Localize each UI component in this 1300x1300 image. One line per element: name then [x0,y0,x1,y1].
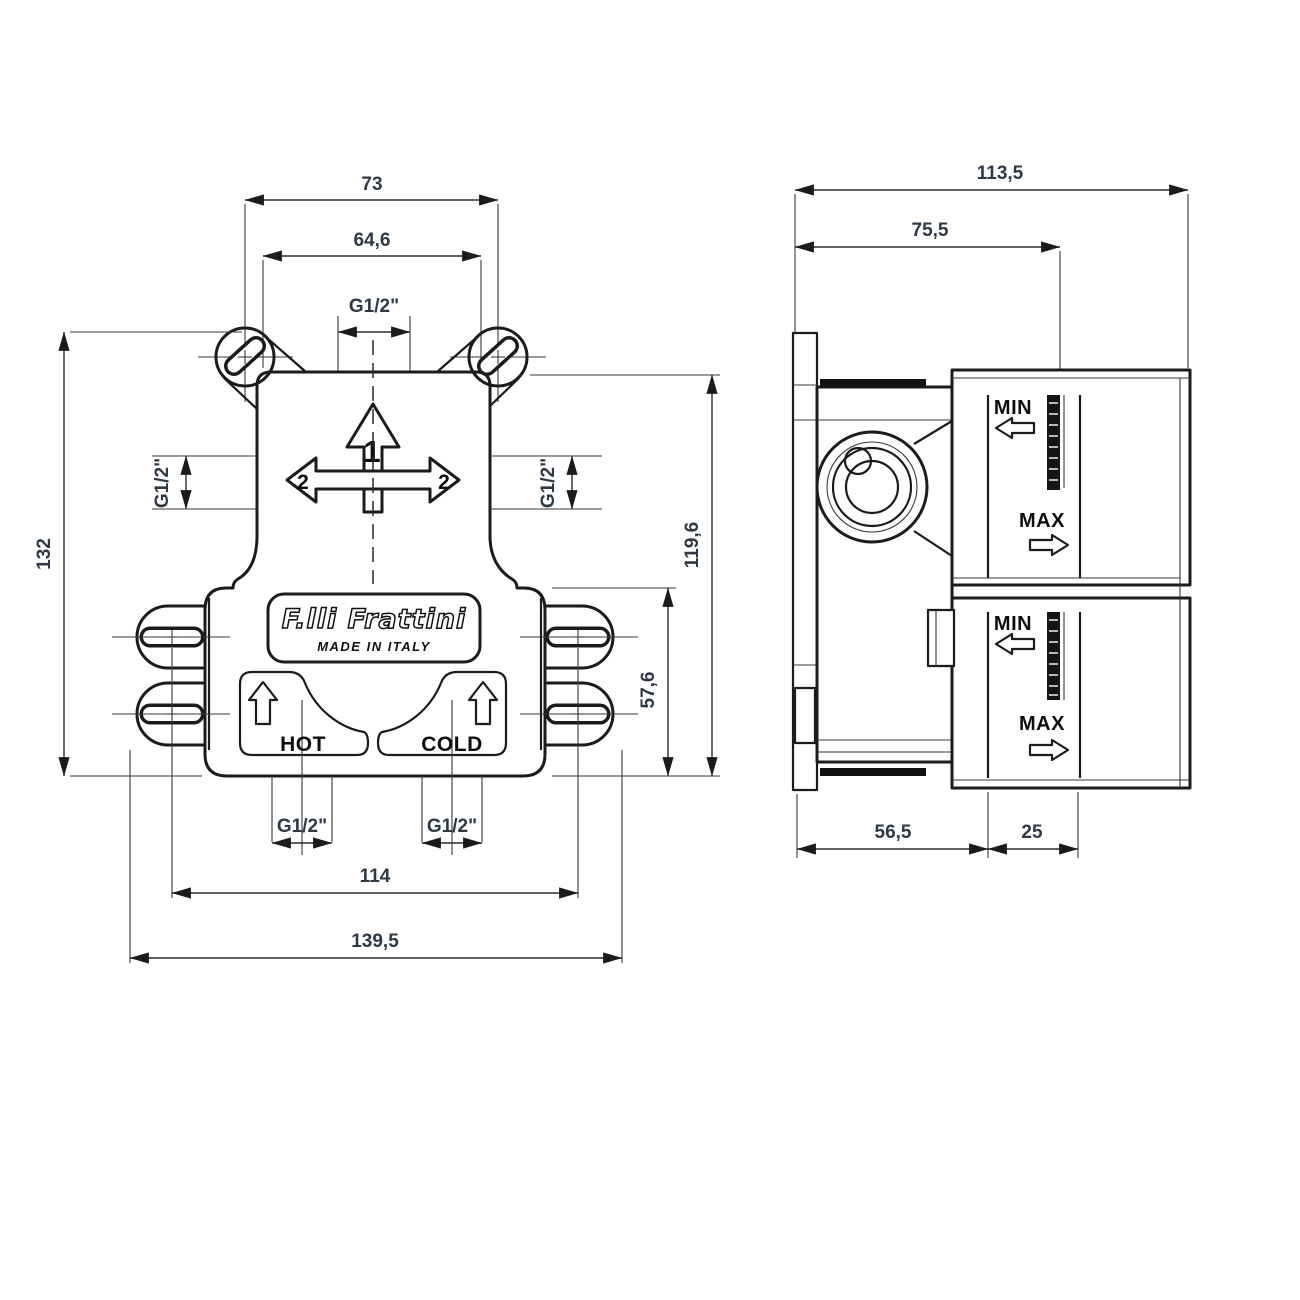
valve-technical-drawing: 73 64,6 G1/2" [0,0,1300,1300]
made-in-italy-text: MADE IN ITALY [317,639,431,654]
dim-113-5-label: 113,5 [977,163,1024,184]
depth-scale-strip-lower [1047,612,1060,700]
flange-window [795,688,815,743]
box-side-tab [928,610,954,666]
mounting-flange [793,333,817,790]
dim-25-label: 25 [1021,822,1043,843]
dim-64-6-label: 64,6 [354,230,391,251]
thread-top-label: G1/2" [349,296,399,317]
dim-114-label: 114 [360,866,391,887]
max-upper-label: MAX [1019,510,1065,532]
top-gasket-band [820,379,926,387]
dim-132-label: 132 [34,538,55,570]
dim-139-5-label: 139,5 [351,931,399,952]
dim-56-5-label: 56,5 [875,822,912,843]
thread-right-label: G1/2" [538,458,559,508]
thread-cold-label: G1/2" [427,816,477,837]
valve-body-side [817,379,952,776]
cold-label: COLD [421,733,483,756]
outlet-number-label: 1 [363,434,380,469]
thread-hot-label: G1/2" [277,816,327,837]
technical-drawing-page: 73 64,6 G1/2" [0,0,1300,1300]
min-lower-label: MIN [994,613,1032,635]
brand-plate: F.lli Frattini MADE IN ITALY [268,594,480,662]
min-upper-label: MIN [994,397,1032,419]
brand-logo-text: F.lli Frattini [282,604,466,635]
plaster-box-lower: MIN MAX [928,598,1190,788]
bottom-gasket-band [820,768,926,776]
dim-73-label: 73 [361,174,382,195]
dim-75-5-label: 75,5 [912,220,949,241]
side-number-left-label: 2 [297,471,309,494]
side-number-right-label: 2 [438,471,450,494]
thread-left-label: G1/2" [152,458,173,508]
hot-label: HOT [280,733,326,756]
max-lower-label: MAX [1019,713,1065,735]
depth-scale-strip-upper [1047,395,1060,490]
dim-119-6-label: 119,6 [682,522,703,569]
dim-57-6-label: 57,6 [638,672,659,709]
